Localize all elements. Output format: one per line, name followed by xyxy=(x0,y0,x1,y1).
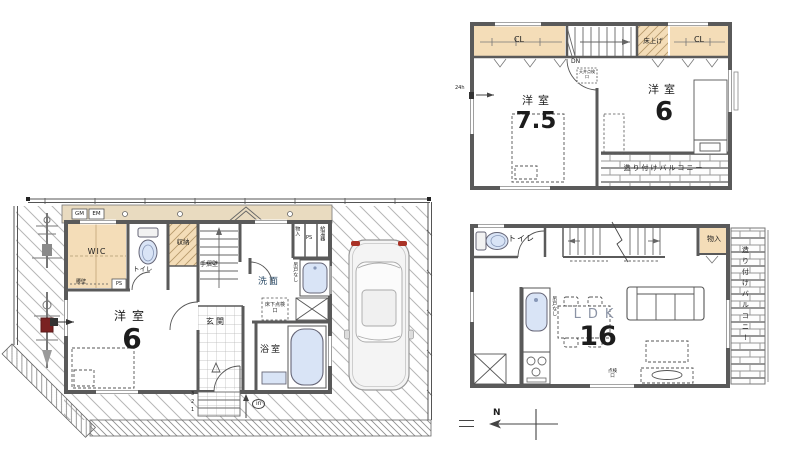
toilet-icon-1f xyxy=(138,228,158,264)
no-hanging-cupboard-label-1f: 吊戸なし xyxy=(292,262,297,298)
room-label-ldk: LDK xyxy=(565,308,629,321)
room-label-western-3f-a: 洋室 xyxy=(512,95,564,106)
no-hanging-cupboard-label-2f: 吊戸なし xyxy=(551,296,556,340)
room-size-western-3f-a: 7.5 xyxy=(508,110,564,133)
kitchen-2f xyxy=(523,288,550,384)
room-label-storage-1f: 収納 xyxy=(169,239,197,246)
room-label-western-3f-b: 洋室 xyxy=(638,84,690,95)
vent-24h-label: 24h xyxy=(455,86,465,91)
waist-wall-label: 腰壁 xyxy=(76,280,86,285)
balcony-label-3f: 造り付けバルコニー xyxy=(608,165,720,172)
north-label: N xyxy=(493,409,501,418)
room-label-wic: WIC xyxy=(79,248,115,256)
washbasin-icon xyxy=(300,260,330,296)
room-label-raised-floor: 床上げ xyxy=(638,38,668,45)
gas-meter-label: GM xyxy=(72,212,87,218)
step-1-label: 1 xyxy=(191,408,194,413)
balcony-label-2f: 造り付けバルコニー xyxy=(741,246,748,376)
room-label-storage-2f: 物入 xyxy=(700,236,728,243)
step-3-label: 3 xyxy=(191,392,194,397)
access-hatch-label-2f: 点検口 xyxy=(606,369,619,380)
bed-3f-6 xyxy=(694,80,727,154)
room-label-toilet-2f: トイレ xyxy=(508,235,535,243)
room-size-western-1f: 6 xyxy=(116,325,148,353)
small-storage-label-1f: 物入 xyxy=(294,226,299,256)
toilet-icon-2f xyxy=(476,232,508,250)
pipe-space-2-label: PS xyxy=(306,236,312,241)
underfloor-access-label: 床下点検口 xyxy=(264,302,286,314)
pipe-space-label: PS xyxy=(112,282,126,287)
room-label-washroom: 洗面 xyxy=(258,278,280,287)
handrail-wall-label: 手摺壁 xyxy=(200,262,218,268)
north-arrow xyxy=(459,409,558,440)
room-label-cl-right: CL xyxy=(684,36,714,44)
water-heater-label: 給湯器 xyxy=(319,226,324,258)
room-size-ldk: 16 xyxy=(577,323,619,350)
room-label-entrance: 玄関 xyxy=(206,318,226,326)
room-label-western-1f: 洋室 xyxy=(104,310,160,322)
step-2-label: 2 xyxy=(191,400,194,405)
floor-plan-canvas: GM EM WIC 腰壁 PS トイレ 収納 手摺壁 物入 PS 給湯器 洗面 … xyxy=(0,0,800,452)
sofa-icon xyxy=(627,287,704,320)
car-icon xyxy=(345,240,414,390)
ceiling-access-label-3f: 天井点検口 xyxy=(578,70,596,80)
room-size-western-3f-b: 6 xyxy=(650,99,678,125)
room-label-toilet-1f: トイレ xyxy=(133,266,153,273)
building-2f xyxy=(470,222,769,389)
room-label-cl-left: CL xyxy=(504,36,534,44)
floor-plan-drawing xyxy=(0,0,800,452)
electric-meter-label: EM xyxy=(89,212,104,218)
room-label-bathroom: 浴室 xyxy=(260,346,282,355)
down-label: DN xyxy=(571,59,580,65)
